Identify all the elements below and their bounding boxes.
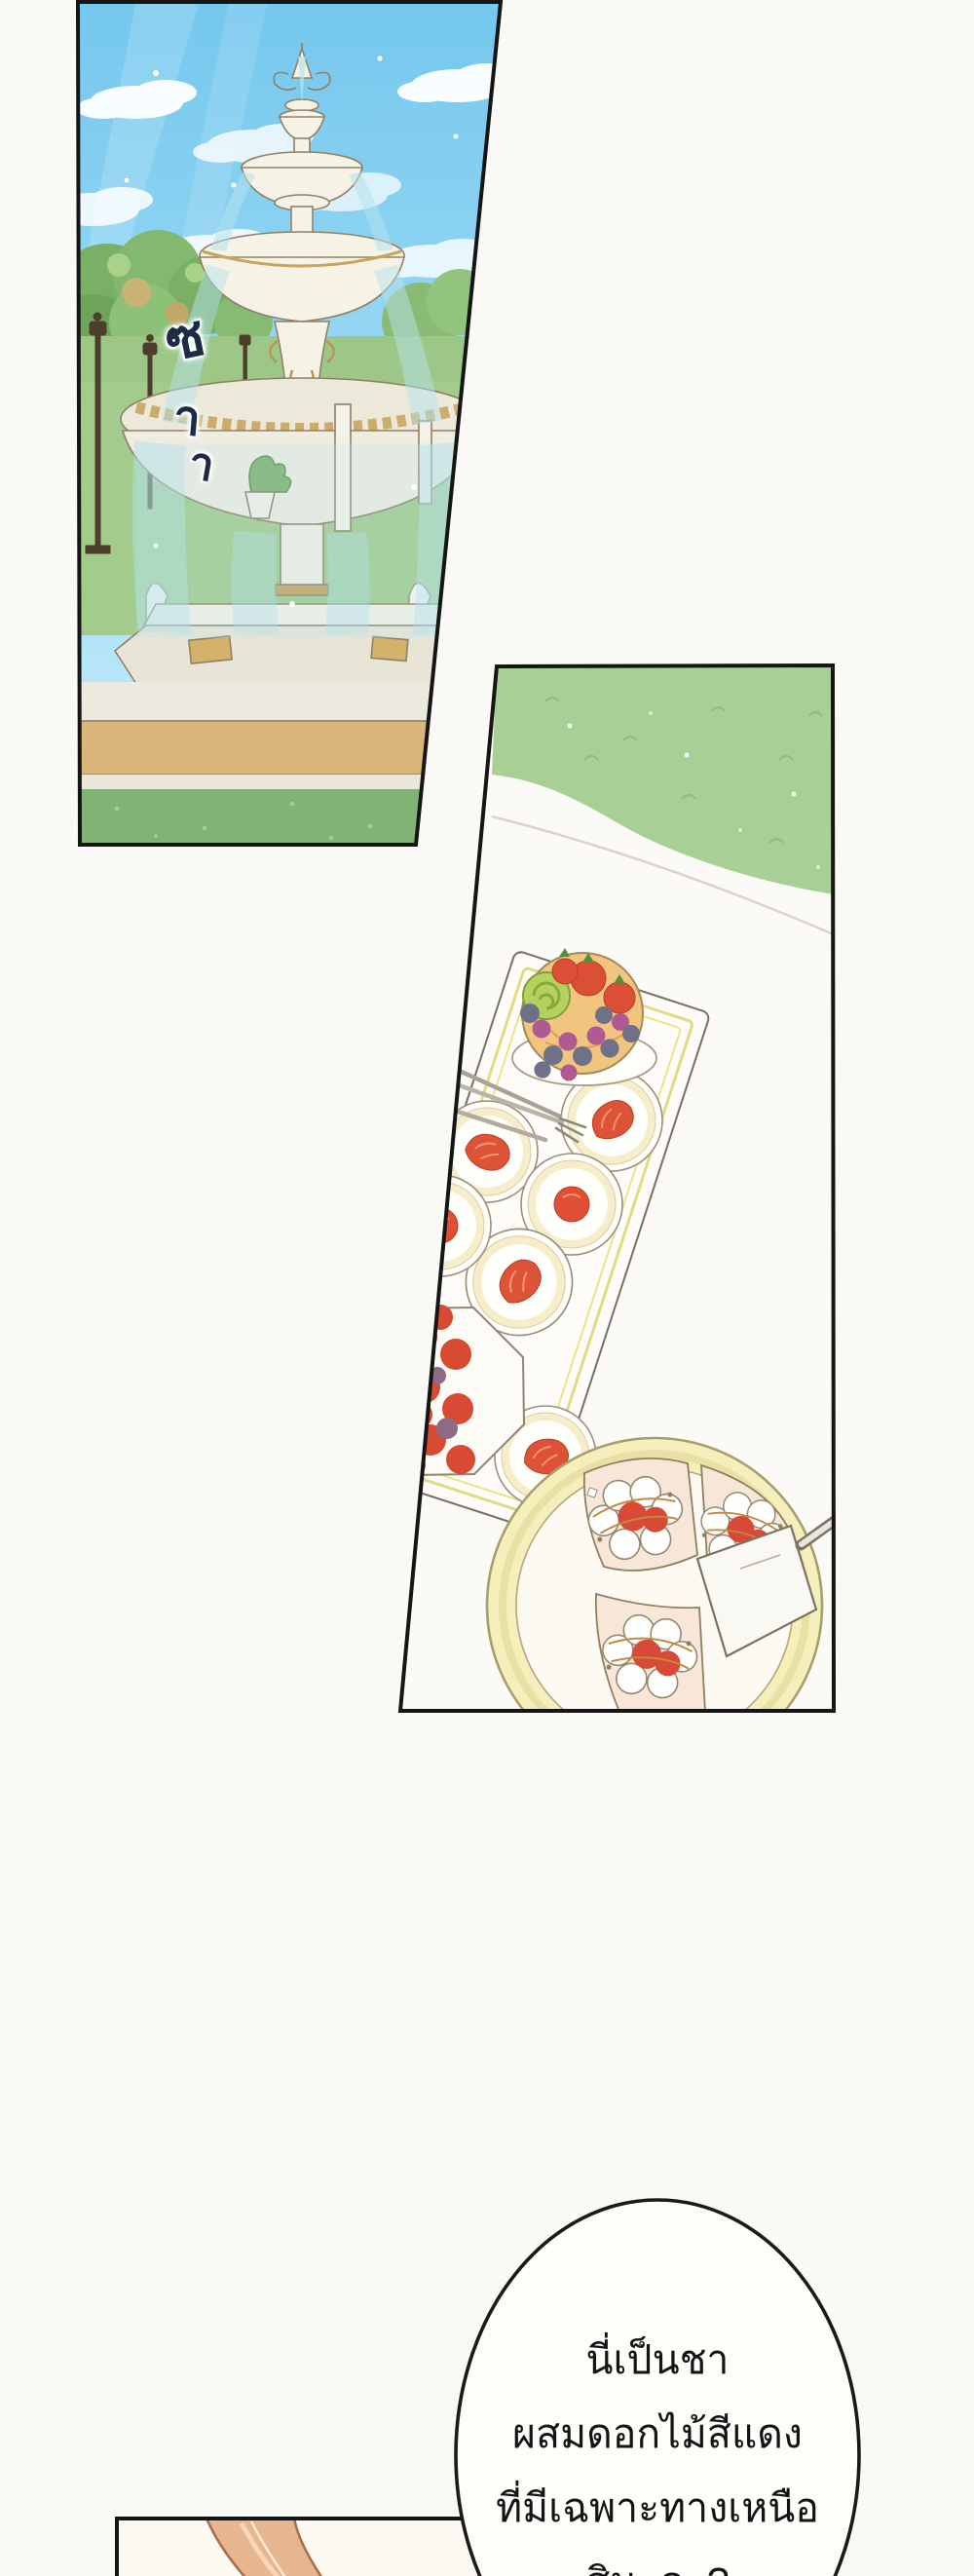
panel-desserts bbox=[348, 661, 839, 1773]
bubble-line: นี่เป็นชา bbox=[477, 2323, 838, 2397]
bubble-line: ผสมดอกไม้สีแดง bbox=[477, 2397, 838, 2471]
grass-strip bbox=[76, 789, 508, 848]
bubble-line: สินะคะ? bbox=[477, 2545, 838, 2576]
comic-artwork bbox=[0, 0, 974, 2576]
panel-fountain bbox=[32, 0, 518, 852]
comic-page: ซ า า นี่เป็นชา ผสมดอกไม้สีแดง ที่มีเฉพา… bbox=[0, 0, 974, 2576]
speech-bubble-text: นี่เป็นชา ผสมดอกไม้สีแดง ที่มีเฉพาะทางเห… bbox=[477, 2323, 838, 2576]
stone-steps bbox=[76, 682, 508, 789]
bubble-line: ที่มีเฉพาะทางเหนือ bbox=[477, 2471, 838, 2545]
